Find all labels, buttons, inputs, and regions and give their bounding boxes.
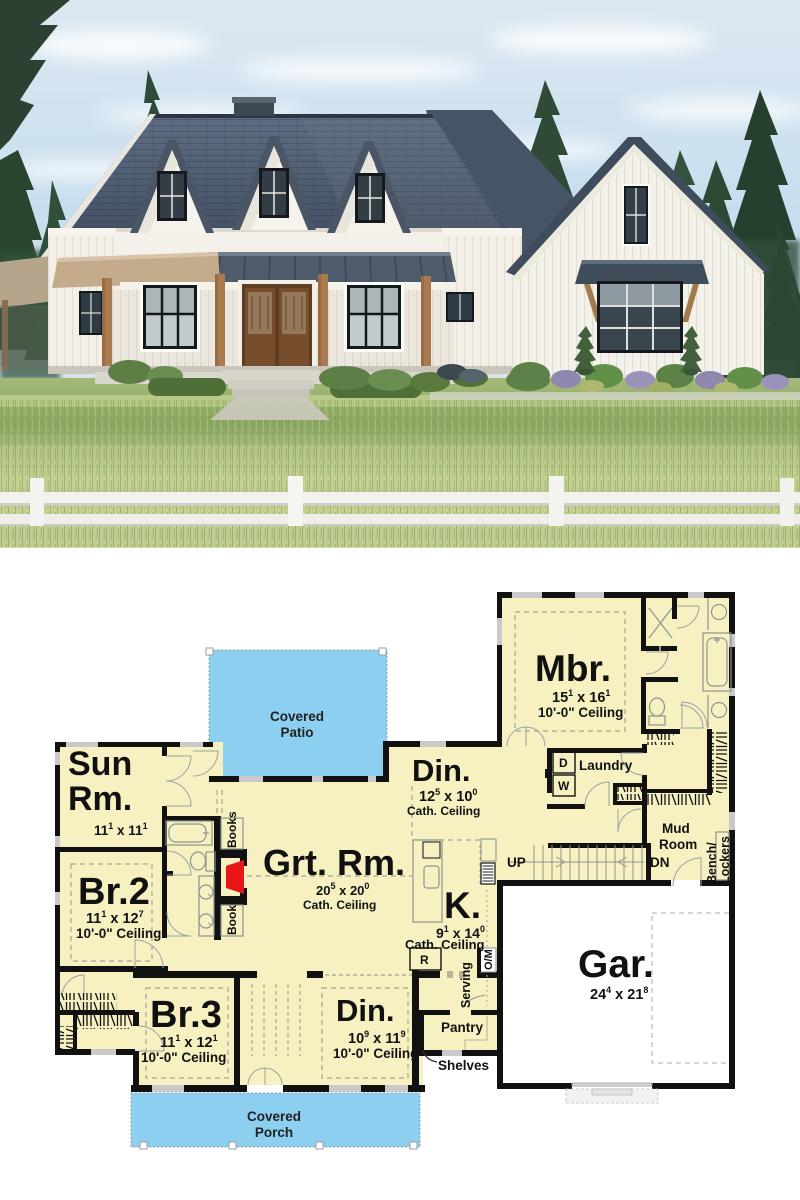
svg-text:10'-0" Ceiling: 10'-0" Ceiling (538, 705, 623, 720)
svg-text:Din.: Din. (336, 993, 395, 1028)
svg-text:Sun: Sun (68, 745, 132, 783)
svg-text:R: R (420, 953, 429, 967)
svg-text:10'-0" Ceiling: 10'-0" Ceiling (76, 926, 161, 941)
svg-text:Porch: Porch (255, 1125, 293, 1140)
svg-text:Br.3: Br.3 (150, 994, 222, 1036)
svg-text:Mud: Mud (662, 821, 690, 836)
svg-text:Grt. Rm.: Grt. Rm. (263, 842, 405, 883)
svg-text:Books: Books (225, 898, 239, 935)
svg-text:Patio: Patio (280, 725, 313, 740)
svg-text:10'-0" Ceiling: 10'-0" Ceiling (141, 1050, 226, 1065)
svg-text:Cath. Ceiling: Cath. Ceiling (303, 898, 376, 912)
svg-text:Serving: Serving (459, 962, 473, 1008)
svg-text:Cath. Ceiling: Cath. Ceiling (407, 804, 480, 818)
svg-text:Br.2: Br.2 (78, 871, 150, 913)
svg-text:111 x 121: 111 x 121 (160, 1033, 218, 1051)
svg-text:205 x 200: 205 x 200 (316, 881, 369, 898)
svg-text:Din.: Din. (412, 753, 471, 788)
svg-text:111 x 127: 111 x 127 (86, 909, 144, 927)
svg-text:244 x 218: 244 x 218 (590, 985, 648, 1003)
svg-text:Cath. Ceiling: Cath. Ceiling (405, 937, 485, 952)
svg-text:Shelves: Shelves (438, 1058, 489, 1073)
svg-text:UP: UP (507, 855, 526, 870)
svg-text:109 x 119: 109 x 119 (348, 1029, 406, 1047)
svg-text:K.: K. (444, 885, 481, 926)
svg-text:D: D (559, 756, 568, 770)
svg-text:Rm.: Rm. (68, 780, 132, 818)
svg-text:Laundry: Laundry (579, 758, 633, 773)
svg-text:151 x 161: 151 x 161 (552, 688, 610, 706)
svg-text:Mbr.: Mbr. (535, 648, 611, 689)
svg-text:Room: Room (659, 837, 697, 852)
svg-text:Pantry: Pantry (441, 1020, 484, 1035)
svg-text:DN: DN (650, 855, 670, 870)
svg-text:Books: Books (225, 811, 239, 848)
svg-text:Covered: Covered (247, 1109, 301, 1124)
svg-text:O/M: O/M (483, 949, 495, 970)
svg-text:10'-0" Ceiling: 10'-0" Ceiling (333, 1046, 418, 1061)
svg-text:125 x 100: 125 x 100 (419, 787, 477, 805)
svg-text:Gar.: Gar. (578, 943, 654, 986)
svg-text:W: W (558, 779, 570, 793)
svg-text:Lockers: Lockers (718, 836, 732, 884)
svg-text:Bench/: Bench/ (705, 842, 719, 884)
svg-text:111 x 111: 111 x 111 (94, 821, 148, 838)
svg-text:Covered: Covered (270, 709, 324, 724)
